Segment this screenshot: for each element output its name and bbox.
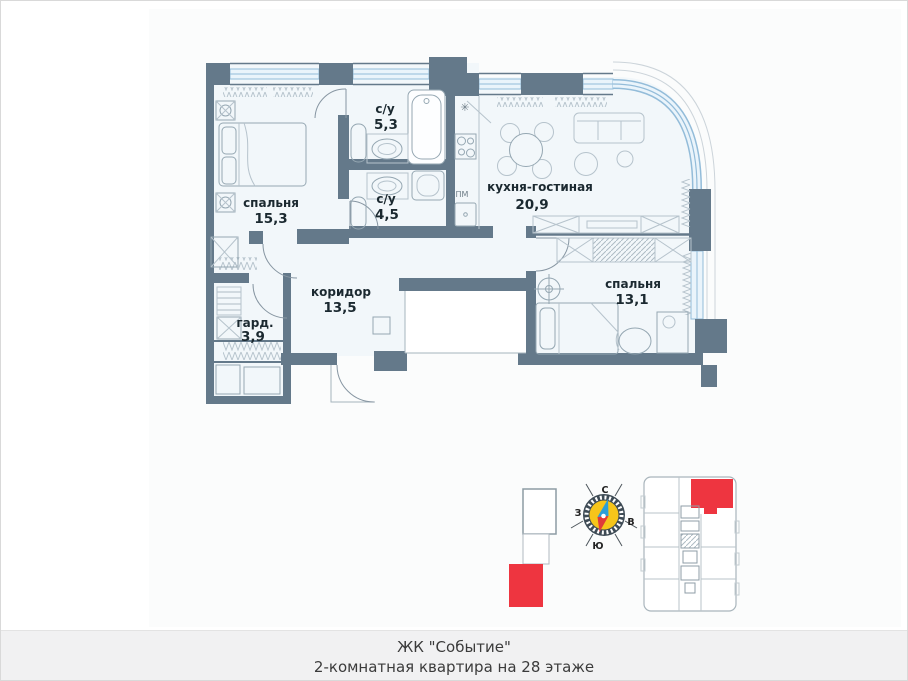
- complex-name: ЖК "Событие": [397, 637, 511, 657]
- dishwasher-label: ПМ: [456, 190, 469, 199]
- room-label-corridor: коридор: [311, 285, 371, 299]
- room-label-bathroom-1: с/у: [375, 102, 394, 116]
- screenshot-canvas: спальня 15,3 с/у 5,3 с/у 4,5 кухня-гости…: [0, 0, 908, 681]
- room-label-bedroom-1: спальня: [243, 196, 299, 210]
- room-area-wardrobe: 3,9: [241, 329, 265, 345]
- compass-east-label: В: [627, 517, 634, 528]
- compass-south-label: Ю: [592, 541, 603, 552]
- floor-plan-svg: спальня 15,3 с/у 5,3 с/у 4,5 кухня-гости…: [1, 1, 908, 631]
- room-area-bedroom-2: 13,1: [615, 292, 648, 308]
- room-area-bathroom-2: 4,5: [375, 207, 399, 223]
- room-area-kitchen-living: 20,9: [515, 197, 548, 213]
- room-area-bathroom-1: 5,3: [374, 117, 398, 133]
- floor-key: [641, 477, 739, 611]
- room-label-bedroom-2: спальня: [605, 277, 661, 291]
- room-area-bedroom-1: 15,3: [254, 211, 287, 227]
- room-area-corridor: 13,5: [323, 300, 356, 316]
- bathtub-icon: [408, 90, 445, 164]
- void-notch: [405, 291, 526, 353]
- room-label-kitchen-living: кухня-гостиная: [487, 180, 593, 194]
- caption-strip: ЖК "Событие" 2-комнатная квартира на 28 …: [1, 630, 907, 681]
- room-label-bathroom-2: с/у: [376, 192, 395, 206]
- shelves-icon: [217, 287, 241, 315]
- apartment-description: 2-комнатная квартира на 28 этаже: [314, 657, 594, 677]
- compass-west-label: З: [575, 508, 582, 519]
- room-label-wardrobe: гард.: [236, 316, 273, 330]
- site-building-outline: [523, 489, 556, 534]
- fridge-icon: ✳: [460, 101, 469, 114]
- site-building-highlighted: [509, 564, 543, 607]
- site-building-outline: [523, 534, 549, 564]
- compass-north-label: С: [602, 485, 609, 496]
- apartment-plan: спальня 15,3 с/у 5,3 с/у 4,5 кухня-гости…: [206, 57, 727, 404]
